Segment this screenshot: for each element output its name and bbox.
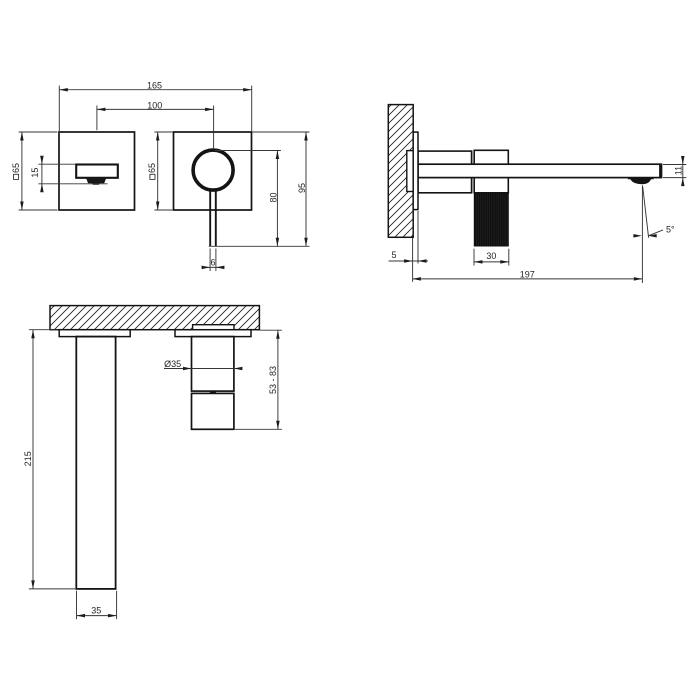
svg-text:35: 35: [91, 605, 101, 615]
svg-text:100: 100: [147, 100, 162, 110]
svg-text:80: 80: [268, 192, 278, 202]
svg-text:11: 11: [674, 166, 684, 175]
svg-text:53 - 83: 53 - 83: [268, 366, 278, 394]
svg-text:5: 5: [391, 250, 396, 260]
svg-text:Ø35: Ø35: [164, 359, 181, 369]
svg-text:165: 165: [147, 81, 162, 91]
svg-text:6: 6: [210, 258, 215, 268]
svg-text:65: 65: [11, 163, 21, 173]
svg-text:5°: 5°: [666, 224, 675, 234]
svg-text:30: 30: [486, 251, 496, 261]
svg-text:95: 95: [297, 183, 307, 193]
svg-text:215: 215: [23, 451, 33, 466]
svg-text:197: 197: [520, 269, 535, 279]
svg-text:65: 65: [147, 163, 157, 173]
svg-text:15: 15: [30, 168, 40, 178]
